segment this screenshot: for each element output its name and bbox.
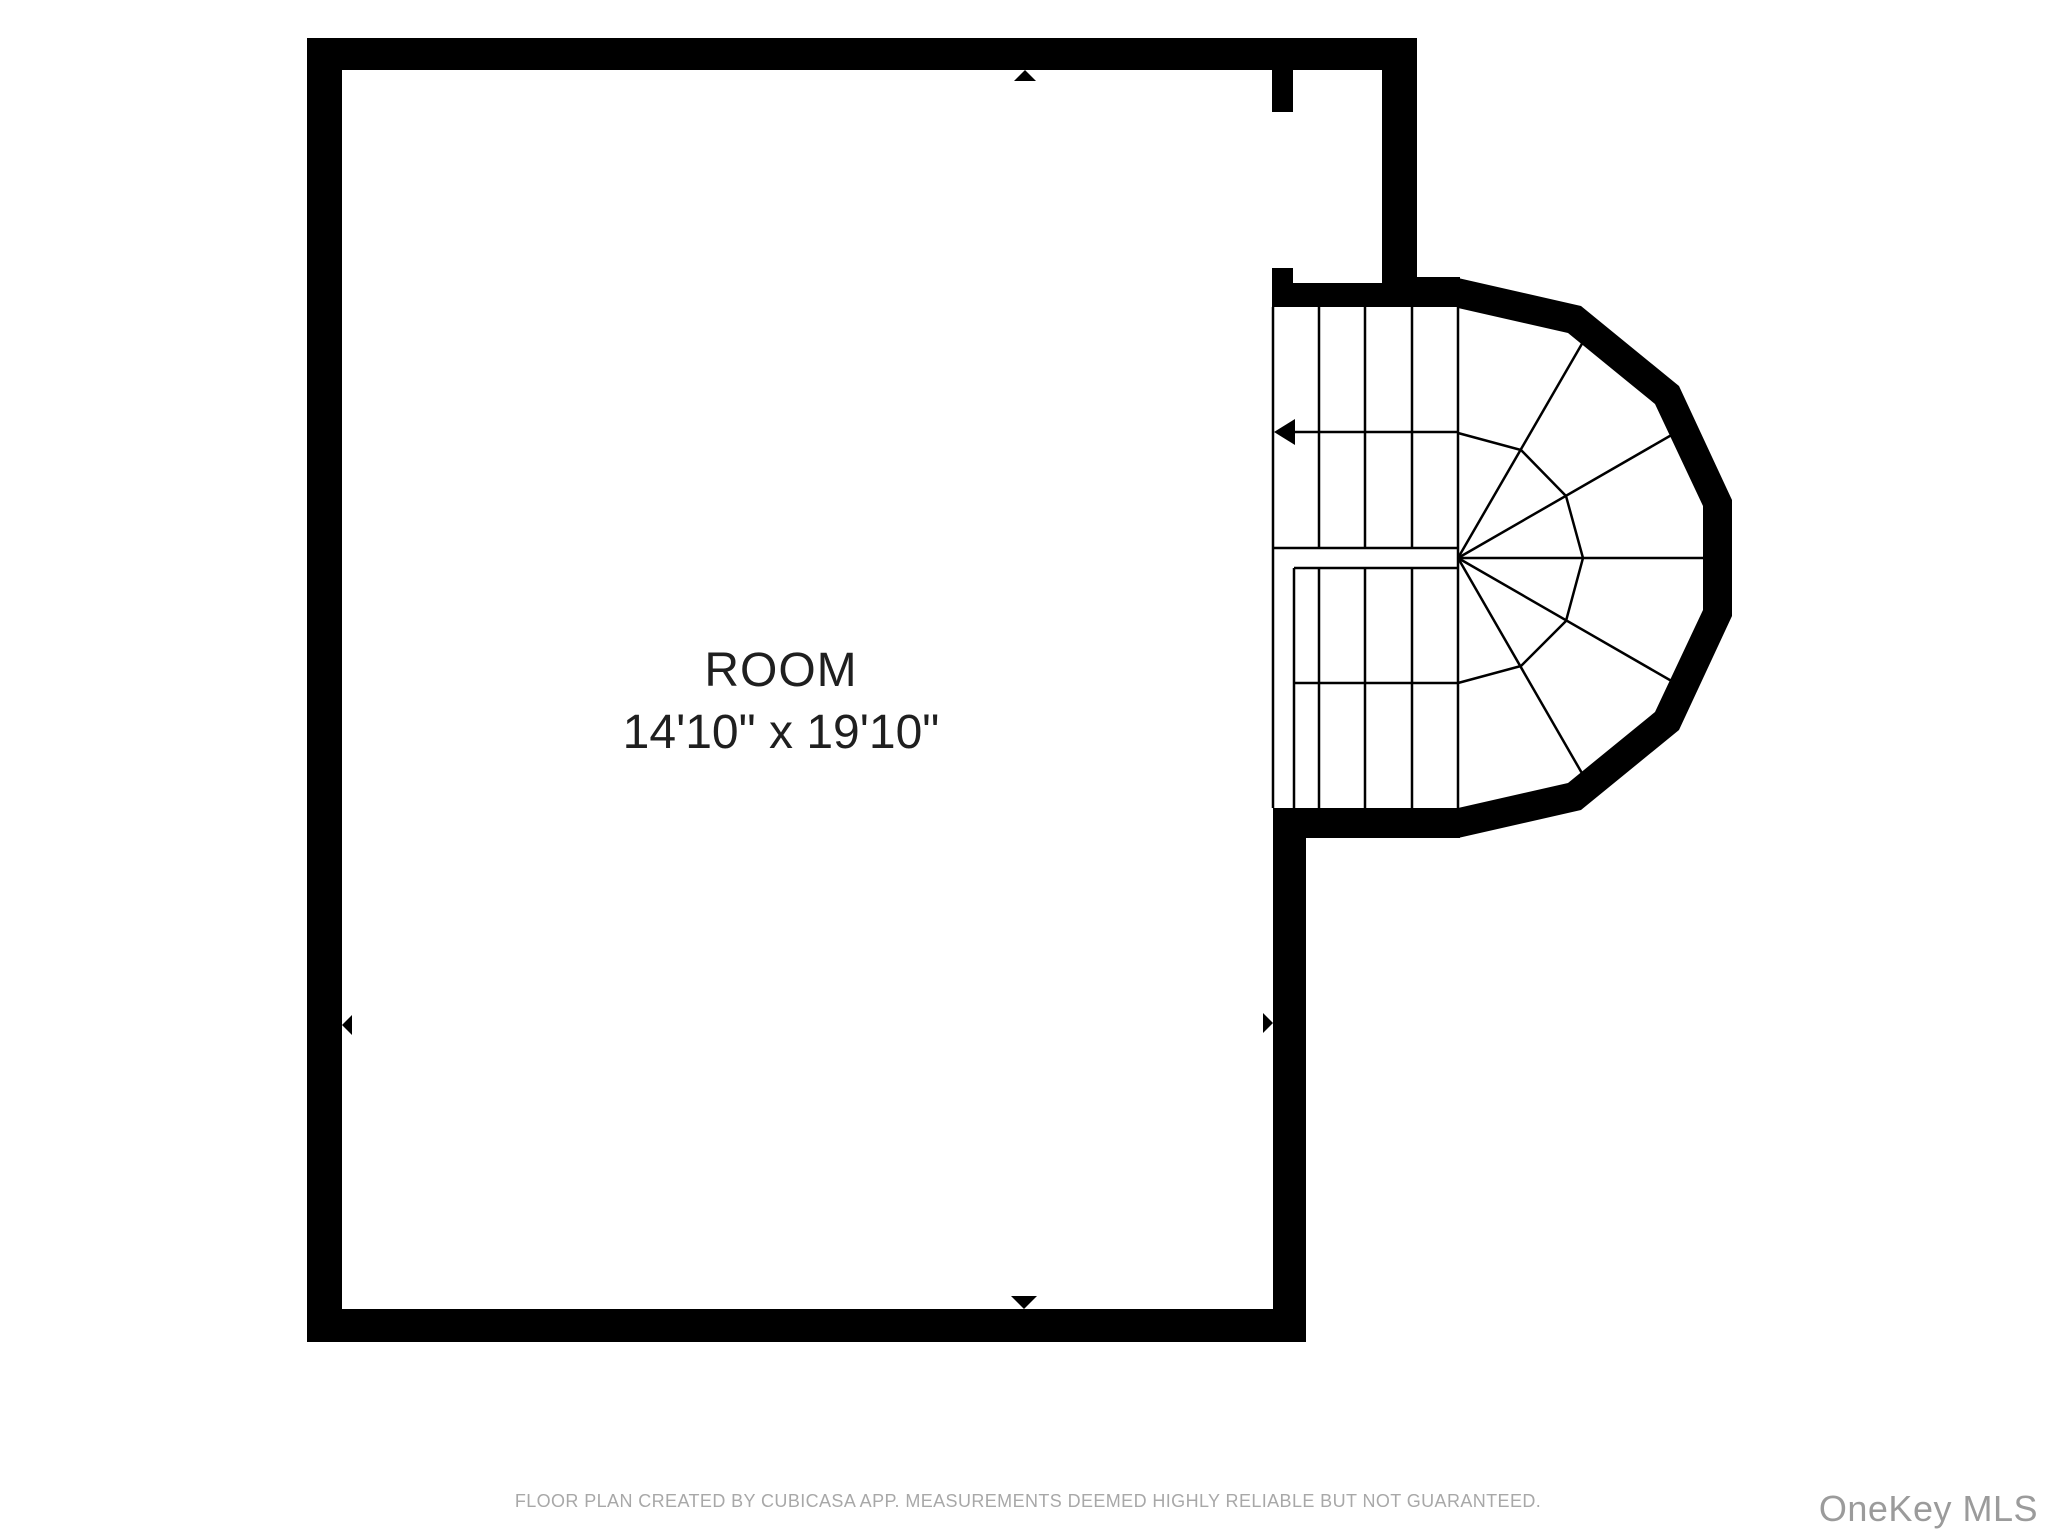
room-label: ROOM [704,644,857,697]
wall-stair-top-band-right [1410,277,1460,307]
wall-stair-bottom-band [1273,808,1460,838]
wall-top [307,38,1417,70]
wall-right-lower [1273,808,1306,1342]
floor-plan-page: ROOM 14'10" x 19'10" FLOOR PLAN CREATED … [0,0,2048,1536]
door-stub-upper [1272,68,1293,112]
wall-bottom [307,1309,1306,1342]
footer-disclaimer: FLOOR PLAN CREATED BY CUBICASA APP. MEAS… [515,1491,1541,1511]
wall-closet-right [1382,68,1417,307]
watermark-label: OneKey MLS [1819,1488,2038,1529]
floor-plan-canvas: ROOM 14'10" x 19'10" FLOOR PLAN CREATED … [0,0,2048,1536]
room-dimensions: 14'10" x 19'10" [623,706,940,759]
wall-left [307,38,342,1342]
